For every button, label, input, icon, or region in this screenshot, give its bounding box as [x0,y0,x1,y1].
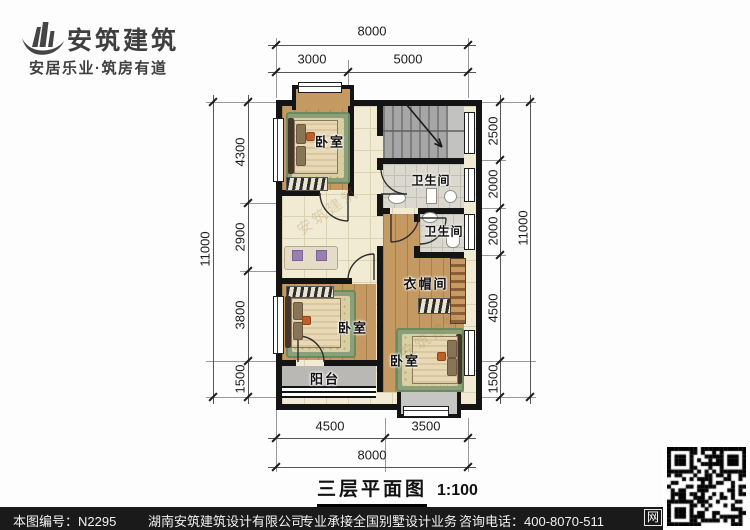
floor-plan-poster: 安筑建筑 安居乐业·筑房有道 安筑建筑 安筑建筑 [0,0,750,530]
window [273,118,284,182]
dim-bottom-total: 8000 [358,448,387,463]
wardrobe [450,258,466,324]
extension-line [385,418,386,472]
wall [377,106,383,136]
dim-bottom-seg1: 4500 [316,419,345,434]
bed-pillow [296,124,306,144]
extension-line [206,397,276,398]
window [464,214,475,250]
footer-drawing-number: 本图编号：N2295 [13,511,116,530]
room-label-bathroom-lower: 卫生间 [424,223,463,240]
wall [282,360,296,366]
extension-line [206,361,276,362]
dim-right-seg3: 2000 [486,217,501,246]
qr-code [663,443,750,530]
sofa-pillow [316,250,327,261]
window [464,112,475,154]
bed-pillow [302,316,311,325]
dim-left-seg3: 3800 [233,301,248,330]
dim-right-seg1: 2500 [486,117,501,146]
drawing-title-text: 三层平面图 [317,474,427,508]
dim-right-total: 11000 [516,210,531,245]
bed-pillow [306,132,315,141]
wall [282,278,352,284]
dim-left-seg2: 2900 [233,223,248,252]
room-label-cloakroom: 衣帽间 [403,274,448,293]
room-label-balcony: 阳台 [310,369,340,388]
dim-left-seg4: 1500 [233,365,248,394]
builder-logo-icon [20,20,66,58]
company-name: 安筑建筑 [67,21,179,57]
dim-top-seg1: 3000 [298,52,327,67]
dim-right-seg4: 4500 [486,294,501,323]
wall [377,246,383,392]
toilet [444,190,457,203]
dimension-line [268,45,476,46]
balcony-railing [282,386,376,398]
window [464,168,475,202]
wall [383,208,390,214]
bed-pillow [447,358,457,376]
dimension-line [268,467,476,468]
sofa-pillow [292,250,303,261]
dim-top-seg2: 5000 [394,52,423,67]
room-label-bathroom-upper: 卫生间 [411,172,450,189]
room-label-bedroom-right: 卧室 [390,351,420,370]
window [273,296,284,354]
wall [377,158,464,164]
window [464,330,475,376]
dim-top-total: 8000 [358,24,387,39]
room-label-bedroom-top: 卧室 [315,132,345,151]
dim-left-total: 11000 [198,231,213,266]
bed-pillow [447,340,457,358]
drawing-title: 三层平面图 1:100 [317,474,478,508]
dim-bottom-seg2: 3500 [412,419,441,434]
dimension-line [268,72,476,73]
footer-bar: 本图编号：N2295 湖南安筑建筑设计有限公司 专业承接全国别墅设计业务 咨询电… [0,507,750,530]
window [403,406,449,417]
footer-company: 湖南安筑建筑设计有限公司 [148,511,304,530]
bed-pillow [296,146,306,166]
footer-phone: 咨询电话：400-8070-511 [459,511,604,530]
footer-service: 专业承接全国别墅设计业务 [301,511,457,530]
striped-rug [286,286,334,298]
sink [388,192,406,204]
dimension-line [530,95,531,404]
bed-pillow [437,352,446,361]
sink [422,212,438,223]
wall [324,360,377,366]
dim-left-seg1: 4300 [233,138,248,167]
striped-rug [286,177,328,191]
dim-right-seg2: 2000 [486,170,501,199]
bathroom-cabinet [426,188,437,204]
company-tagline: 安居乐业·筑房有道 [29,57,168,78]
window [298,82,342,93]
dimension-line [268,438,476,439]
room-label-bedroom-left: 卧室 [338,318,368,337]
dim-right-seg5: 1500 [486,365,501,394]
qr-code-canvas [667,447,746,526]
staircase-landing [448,106,464,158]
wall [377,164,383,170]
extension-line [206,102,276,103]
bed-pillow [293,322,303,340]
wall [414,214,420,222]
drawing-scale: 1:100 [437,482,478,500]
web-icon: 网 [644,509,662,526]
dimension-line [213,95,214,404]
